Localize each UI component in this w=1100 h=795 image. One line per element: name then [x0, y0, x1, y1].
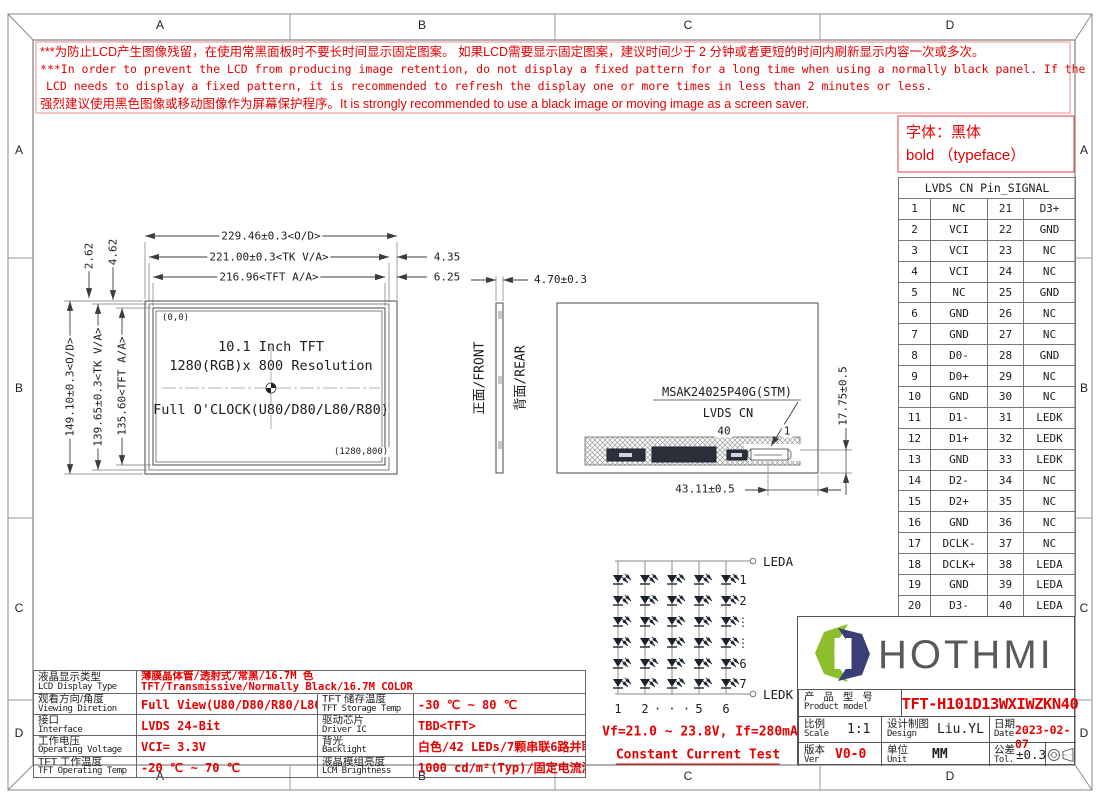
pin-signal-cell: NC [1024, 303, 1076, 324]
pin-row: 2VCI22GND [899, 219, 1076, 240]
pin-number-cell: 3 [899, 240, 931, 261]
pin-number-cell: 7 [899, 324, 931, 345]
pin-signal-cell: VCI [931, 219, 988, 240]
pin-signal-cell: GND [931, 324, 988, 345]
pin-signal-cell: NC [1024, 533, 1076, 554]
pin-number-cell: 6 [899, 303, 931, 324]
pin-signal-cell: DCLK+ [931, 554, 988, 575]
pin-number-cell: 2 [899, 219, 931, 240]
dim-right-gap-2: 6.25 [432, 271, 463, 284]
pin-number-cell: 39 [988, 575, 1024, 596]
spec-label-cell: 接口Interface [34, 714, 137, 735]
led-col-label: 1 [614, 702, 621, 716]
led-row-label: ⋮ [737, 615, 749, 629]
pin-row: 16GND36NC [899, 512, 1076, 533]
product-model-value: TFT-H101D13WXIWZKN40 [902, 695, 1079, 713]
pin-number-cell: 24 [988, 261, 1024, 282]
pin-number-cell: 13 [899, 449, 931, 470]
spec-value-cell: Full View(U80/D80/R80/L80) [137, 694, 318, 715]
retention-warning: ***为防止LCD产生图像残留，在使用常黑面板时不要长时间显示固定图案。 如果L… [40, 44, 1068, 113]
frame-zone-letter: A [156, 18, 164, 32]
connector-pin40-label: 40 [715, 425, 732, 438]
logo-row: HOTHMI [798, 617, 1076, 689]
led-cathode-label: LEDK [763, 687, 793, 702]
pin-row: 3VCI23NC [899, 240, 1076, 261]
spec-value-cell: 薄膜晶体管/透射式/常黑/16.7M 色TFT/Transmissive/Nor… [137, 671, 586, 694]
rear-ic-3 [727, 450, 747, 460]
pin-number-cell: 1 [899, 199, 931, 220]
pin-signal-cell: LEDK [1024, 449, 1076, 470]
constant-current-test-text: Constant Current Test [616, 748, 780, 763]
pin-row: 6GND26NC [899, 303, 1076, 324]
scale-value: 1:1 [847, 722, 870, 737]
pin-signal-cell: NC [931, 199, 988, 220]
led-row-label: 2 [739, 594, 746, 608]
pin-row: 4VCI24NC [899, 261, 1076, 282]
pin-number-cell: 18 [899, 554, 931, 575]
frame-zone-letter: D [946, 769, 955, 783]
pin-signal-cell: D0+ [931, 366, 988, 387]
led-row-label: ⋮ [737, 636, 749, 650]
typeface-note-en: bold （typeface） [906, 144, 1025, 168]
dim-right-gap-1: 4.35 [432, 251, 463, 264]
led-col-label: 2 [641, 702, 648, 716]
pin-number-cell: 4 [899, 261, 931, 282]
frame-zone-letter: C [684, 18, 693, 32]
pin-signal-cell: NC [1024, 387, 1076, 408]
connector-model-label: MSAK24025P40G(STM) [662, 385, 792, 399]
pin-number-cell: 19 [899, 575, 931, 596]
typeface-note: 字体：黑体 bold （typeface） [906, 122, 1025, 168]
frame-zone-letter: B [1080, 381, 1088, 395]
pin-number-cell: 11 [899, 407, 931, 428]
panel-size-label: 10.1 Inch TFT [218, 339, 324, 355]
pin-number-cell: 26 [988, 303, 1024, 324]
frame-zone-letter: B [15, 381, 23, 395]
dim-tk-width: 221.00±0.3<TK V/A> [207, 251, 330, 264]
center-mark-icon [266, 383, 276, 393]
pin-signal-cell: GND [931, 303, 988, 324]
spec-label-cell: 液晶模组亮度LCM Brightness [318, 756, 414, 777]
led-row-label: 1 [739, 573, 746, 587]
pin-signal-cell: D0- [931, 345, 988, 366]
dim-tk-height: 139.65±0.3<TK V/A> [92, 325, 105, 448]
frame-zone-letter: D [1080, 726, 1089, 740]
pin-signal-cell: NC [1024, 512, 1076, 533]
dim-connector-height: 17.75±0.5 [837, 364, 850, 428]
pin-signal-cell: NC [1024, 261, 1076, 282]
pin-signal-cell: NC [1024, 366, 1076, 387]
pin-signal-cell: VCI [931, 240, 988, 261]
spec-label-cell: 观看方向/角度Viewing Diretion [34, 694, 137, 715]
unit-value: MM [932, 747, 948, 762]
led-col-label: · · · [654, 702, 690, 716]
warning-line-4: 强烈建议使用黑色图像或移动图像作为屏幕保护程序。It is strongly r… [40, 95, 1068, 113]
led-row-label: 6 [739, 657, 746, 671]
pin-number-cell: 38 [988, 554, 1024, 575]
pin-number-cell: 35 [988, 491, 1024, 512]
pin-number-cell: 9 [899, 366, 931, 387]
pin-number-cell: 22 [988, 219, 1024, 240]
spec-label-cell: 背光Backlight [318, 735, 414, 756]
pin-signal-cell: GND [1024, 219, 1076, 240]
pin-row: 10GND30NC [899, 387, 1076, 408]
pin-signal-cell: LEDK [1024, 407, 1076, 428]
dim-outline-height: 149.10±0.3<O/D> [64, 335, 77, 438]
spec-value-cell: TBD<TFT> [414, 714, 586, 735]
pin-number-cell: 29 [988, 366, 1024, 387]
pin-signal-cell: NC [1024, 240, 1076, 261]
pin-number-cell: 34 [988, 470, 1024, 491]
version-label: 版本 Ver [804, 745, 825, 765]
spec-label-cell: TFT 储存温度TFT Storage Temp [318, 694, 414, 715]
pin-number-cell: 5 [899, 282, 931, 303]
pin-signal-cell: LEDA [1024, 554, 1076, 575]
spec-row: 观看方向/角度Viewing DiretionFull View(U80/D80… [34, 694, 586, 715]
pin-number-cell: 8 [899, 345, 931, 366]
frame-zone-letter: D [946, 18, 955, 32]
pin-number-cell: 21 [988, 199, 1024, 220]
spec-row: TFT 工作温度TFT Operating Temp-20 ℃ ~ 70 ℃液晶… [34, 756, 586, 777]
side-view-outline [496, 303, 503, 473]
connector-pin1-label: 1 [782, 425, 793, 438]
pin-signal-cell: NC [1024, 491, 1076, 512]
frame-zone-letter: D [15, 726, 24, 740]
pin-signal-cell: D1- [931, 407, 988, 428]
title-block: HOTHMI 产 品 型 号 Product model TFT-H101D13… [797, 616, 1075, 765]
pin-number-cell: 14 [899, 470, 931, 491]
pin-number-cell: 37 [988, 533, 1024, 554]
pin-row: 12D1+32LEDK [899, 428, 1076, 449]
tolerance-value: ±0.3 [1016, 747, 1046, 762]
pin-row: 20D3-40LEDA [899, 595, 1076, 616]
typeface-note-cn: 字体：黑体 [906, 122, 1025, 144]
backlight-vf-text: Vf=21.0 ~ 23.8V, If=280mA [602, 725, 798, 740]
rear-pcb-strip [585, 437, 801, 465]
lvds-connector [751, 449, 788, 460]
pin-row: 8D0-28GND [899, 345, 1076, 366]
dim-outline-width: 229.46±0.3<O/D> [219, 230, 322, 243]
pin-number-cell: 33 [988, 449, 1024, 470]
pin-signal-cell: LEDA [1024, 575, 1076, 596]
pin-number-cell: 32 [988, 428, 1024, 449]
spec-row: 液晶显示类型LCD Display Type薄膜晶体管/透射式/常黑/16.7M… [34, 671, 586, 694]
pin-number-cell: 20 [899, 595, 931, 616]
frame-zone-letter: C [15, 601, 24, 615]
pin-row: 5NC25GND [899, 282, 1076, 303]
pin-signal-cell: GND [931, 387, 988, 408]
unit-label: 单位 Unit [887, 745, 908, 765]
pin-number-cell: 31 [988, 407, 1024, 428]
spec-label-cell: 工作电压Operating Voltage [34, 735, 137, 756]
pin-number-cell: 23 [988, 240, 1024, 261]
hothmi-logo-icon [812, 623, 872, 683]
pin-signal-cell: GND [931, 449, 988, 470]
rear-ic-1 [607, 449, 645, 461]
dim-aa-width: 216.96<TFT A/A> [217, 271, 320, 284]
date-label: 日期 Date [994, 719, 1015, 739]
pin-number-cell: 15 [899, 491, 931, 512]
rear-face-label: 背面/REAR [510, 345, 529, 410]
frame-zone-letter: B [418, 18, 426, 32]
led-row-label: 7 [739, 677, 746, 691]
pin-signal-cell: D2+ [931, 491, 988, 512]
side-view-dimension-lines [471, 276, 528, 301]
pin-signal-cell: D2- [931, 470, 988, 491]
pin-signal-cell: LEDA [1024, 595, 1076, 616]
frame-zone-letter: C [1080, 601, 1089, 615]
warning-line-1: ***为防止LCD产生图像残留，在使用常黑面板时不要长时间显示固定图案。 如果L… [40, 44, 1068, 61]
pin-signal-cell: GND [1024, 282, 1076, 303]
pin-signal-cell: DCLK- [931, 533, 988, 554]
spec-value-cell: -20 ℃ ~ 70 ℃ [137, 756, 318, 777]
origin-coordinate-label: (0,0) [160, 313, 191, 323]
pin-signal-cell: NC [1024, 470, 1076, 491]
pin-signal-cell: NC [931, 282, 988, 303]
pin-number-cell: 12 [899, 428, 931, 449]
dim-thickness: 4.70±0.3 [532, 273, 589, 286]
designer-value: Liu.YL [937, 722, 984, 737]
spec-value-cell: LVDS 24-Bit [137, 714, 318, 735]
dim-top-gap-2: 4.62 [107, 237, 120, 268]
spec-value-cell: 1000 cd/m²(Typ)/固定电流测试 [414, 756, 586, 777]
spec-value-cell: VCI= 3.3V [137, 735, 318, 756]
pin-signal-cell: GND [931, 512, 988, 533]
version-value: V0-0 [835, 747, 866, 762]
dim-connector-offset: 43.11±0.5 [673, 483, 737, 496]
pin-row: 19GND39LEDA [899, 575, 1076, 596]
spec-value-cell: -30 ℃ ~ 80 ℃ [414, 694, 586, 715]
pin-signal-cell: D1+ [931, 428, 988, 449]
panel-resolution-label: 1280(RGB)x 800 Resolution [169, 358, 372, 374]
projection-symbol-icon [1046, 743, 1077, 767]
front-face-label: 正面/FRONT [469, 342, 488, 415]
spec-value-cell: 白色/42 LEDs/7颗串联6路并联 [414, 735, 586, 756]
pin-number-cell: 30 [988, 387, 1024, 408]
pin-number-cell: 17 [899, 533, 931, 554]
spec-label-cell: 驱动芯片Driver IC [318, 714, 414, 735]
led-col-label: 5 [695, 702, 702, 716]
pin-row: 13GND33LEDK [899, 449, 1076, 470]
pin-row: 11D1-31LEDK [899, 407, 1076, 428]
pin-signal-cell: NC [1024, 324, 1076, 345]
rear-ic-2 [652, 447, 716, 462]
pin-row: 17DCLK-37NC [899, 533, 1076, 554]
pin-signal-cell: GND [1024, 345, 1076, 366]
pin-signal-cell: D3+ [1024, 199, 1076, 220]
frame-zone-letter: A [15, 143, 23, 157]
pin-number-cell: 36 [988, 512, 1024, 533]
lcd-spec-table: 液晶显示类型LCD Display Type薄膜晶体管/透射式/常黑/16.7M… [33, 670, 586, 778]
pin-signal-cell: VCI [931, 261, 988, 282]
pin-number-cell: 16 [899, 512, 931, 533]
pin-signal-cell: D3- [931, 595, 988, 616]
pin-row: 15D2+35NC [899, 491, 1076, 512]
design-label: 设计制图 Design [887, 719, 929, 739]
connector-name-label: LVDS CN [703, 406, 754, 420]
pin-row: 14D2-34NC [899, 470, 1076, 491]
product-model-label: 产 品 型 号 Product model [804, 692, 901, 712]
pin-number-cell: 25 [988, 282, 1024, 303]
frame-zone-letter: C [684, 769, 693, 783]
end-coordinate-label: (1280,800) [332, 447, 390, 457]
frame-zone-letter: A [1080, 143, 1088, 157]
pin-signal-cell: LEDK [1024, 428, 1076, 449]
pin-number-cell: 27 [988, 324, 1024, 345]
led-backlight-circuit [613, 558, 756, 697]
tolerance-label: 公差 Tol. [994, 745, 1015, 765]
dim-aa-height: 135.60<TFT A/A> [116, 334, 129, 437]
led-anode-label: LEDA [763, 554, 793, 569]
brand-wordmark: HOTHMI [878, 633, 1054, 678]
spec-row: 工作电压Operating VoltageVCI= 3.3V背光Backligh… [34, 735, 586, 756]
engineering-drawing-sheet: { "frame": { "cols": ["A","B","C","D"], … [0, 0, 1100, 795]
pin-number-cell: 40 [988, 595, 1024, 616]
pin-signal-cell: GND [931, 575, 988, 596]
scale-label: 比例 Scale [804, 719, 829, 739]
spec-label-cell: 液晶显示类型LCD Display Type [34, 671, 137, 694]
pin-number-cell: 10 [899, 387, 931, 408]
warning-line-2: ***In order to prevent the LCD from prod… [40, 61, 1068, 78]
pin-row: 7GND27NC [899, 324, 1076, 345]
pin-row: 9D0+29NC [899, 366, 1076, 387]
dim-top-gap-1: 2.62 [83, 241, 96, 272]
spec-label-cell: TFT 工作温度TFT Operating Temp [34, 756, 137, 777]
lvds-pin-table: LVDS CN Pin_SIGNAL 1NC21D3+2VCI22GND3VCI… [898, 177, 1076, 617]
warning-line-3: LCD needs to display a fixed pattern, it… [40, 78, 1068, 95]
spec-row: 接口InterfaceLVDS 24-Bit驱动芯片Driver ICTBD<T… [34, 714, 586, 735]
pin-row: 18DCLK+38LEDA [899, 554, 1076, 575]
panel-viewing-label: Full O'CLOCK(U80/D80/L80/R80) [153, 402, 389, 418]
led-col-label: 6 [722, 702, 729, 716]
pin-number-cell: 28 [988, 345, 1024, 366]
pin-table-header: LVDS CN Pin_SIGNAL [899, 178, 1076, 199]
pin-row: 1NC21D3+ [899, 199, 1076, 220]
